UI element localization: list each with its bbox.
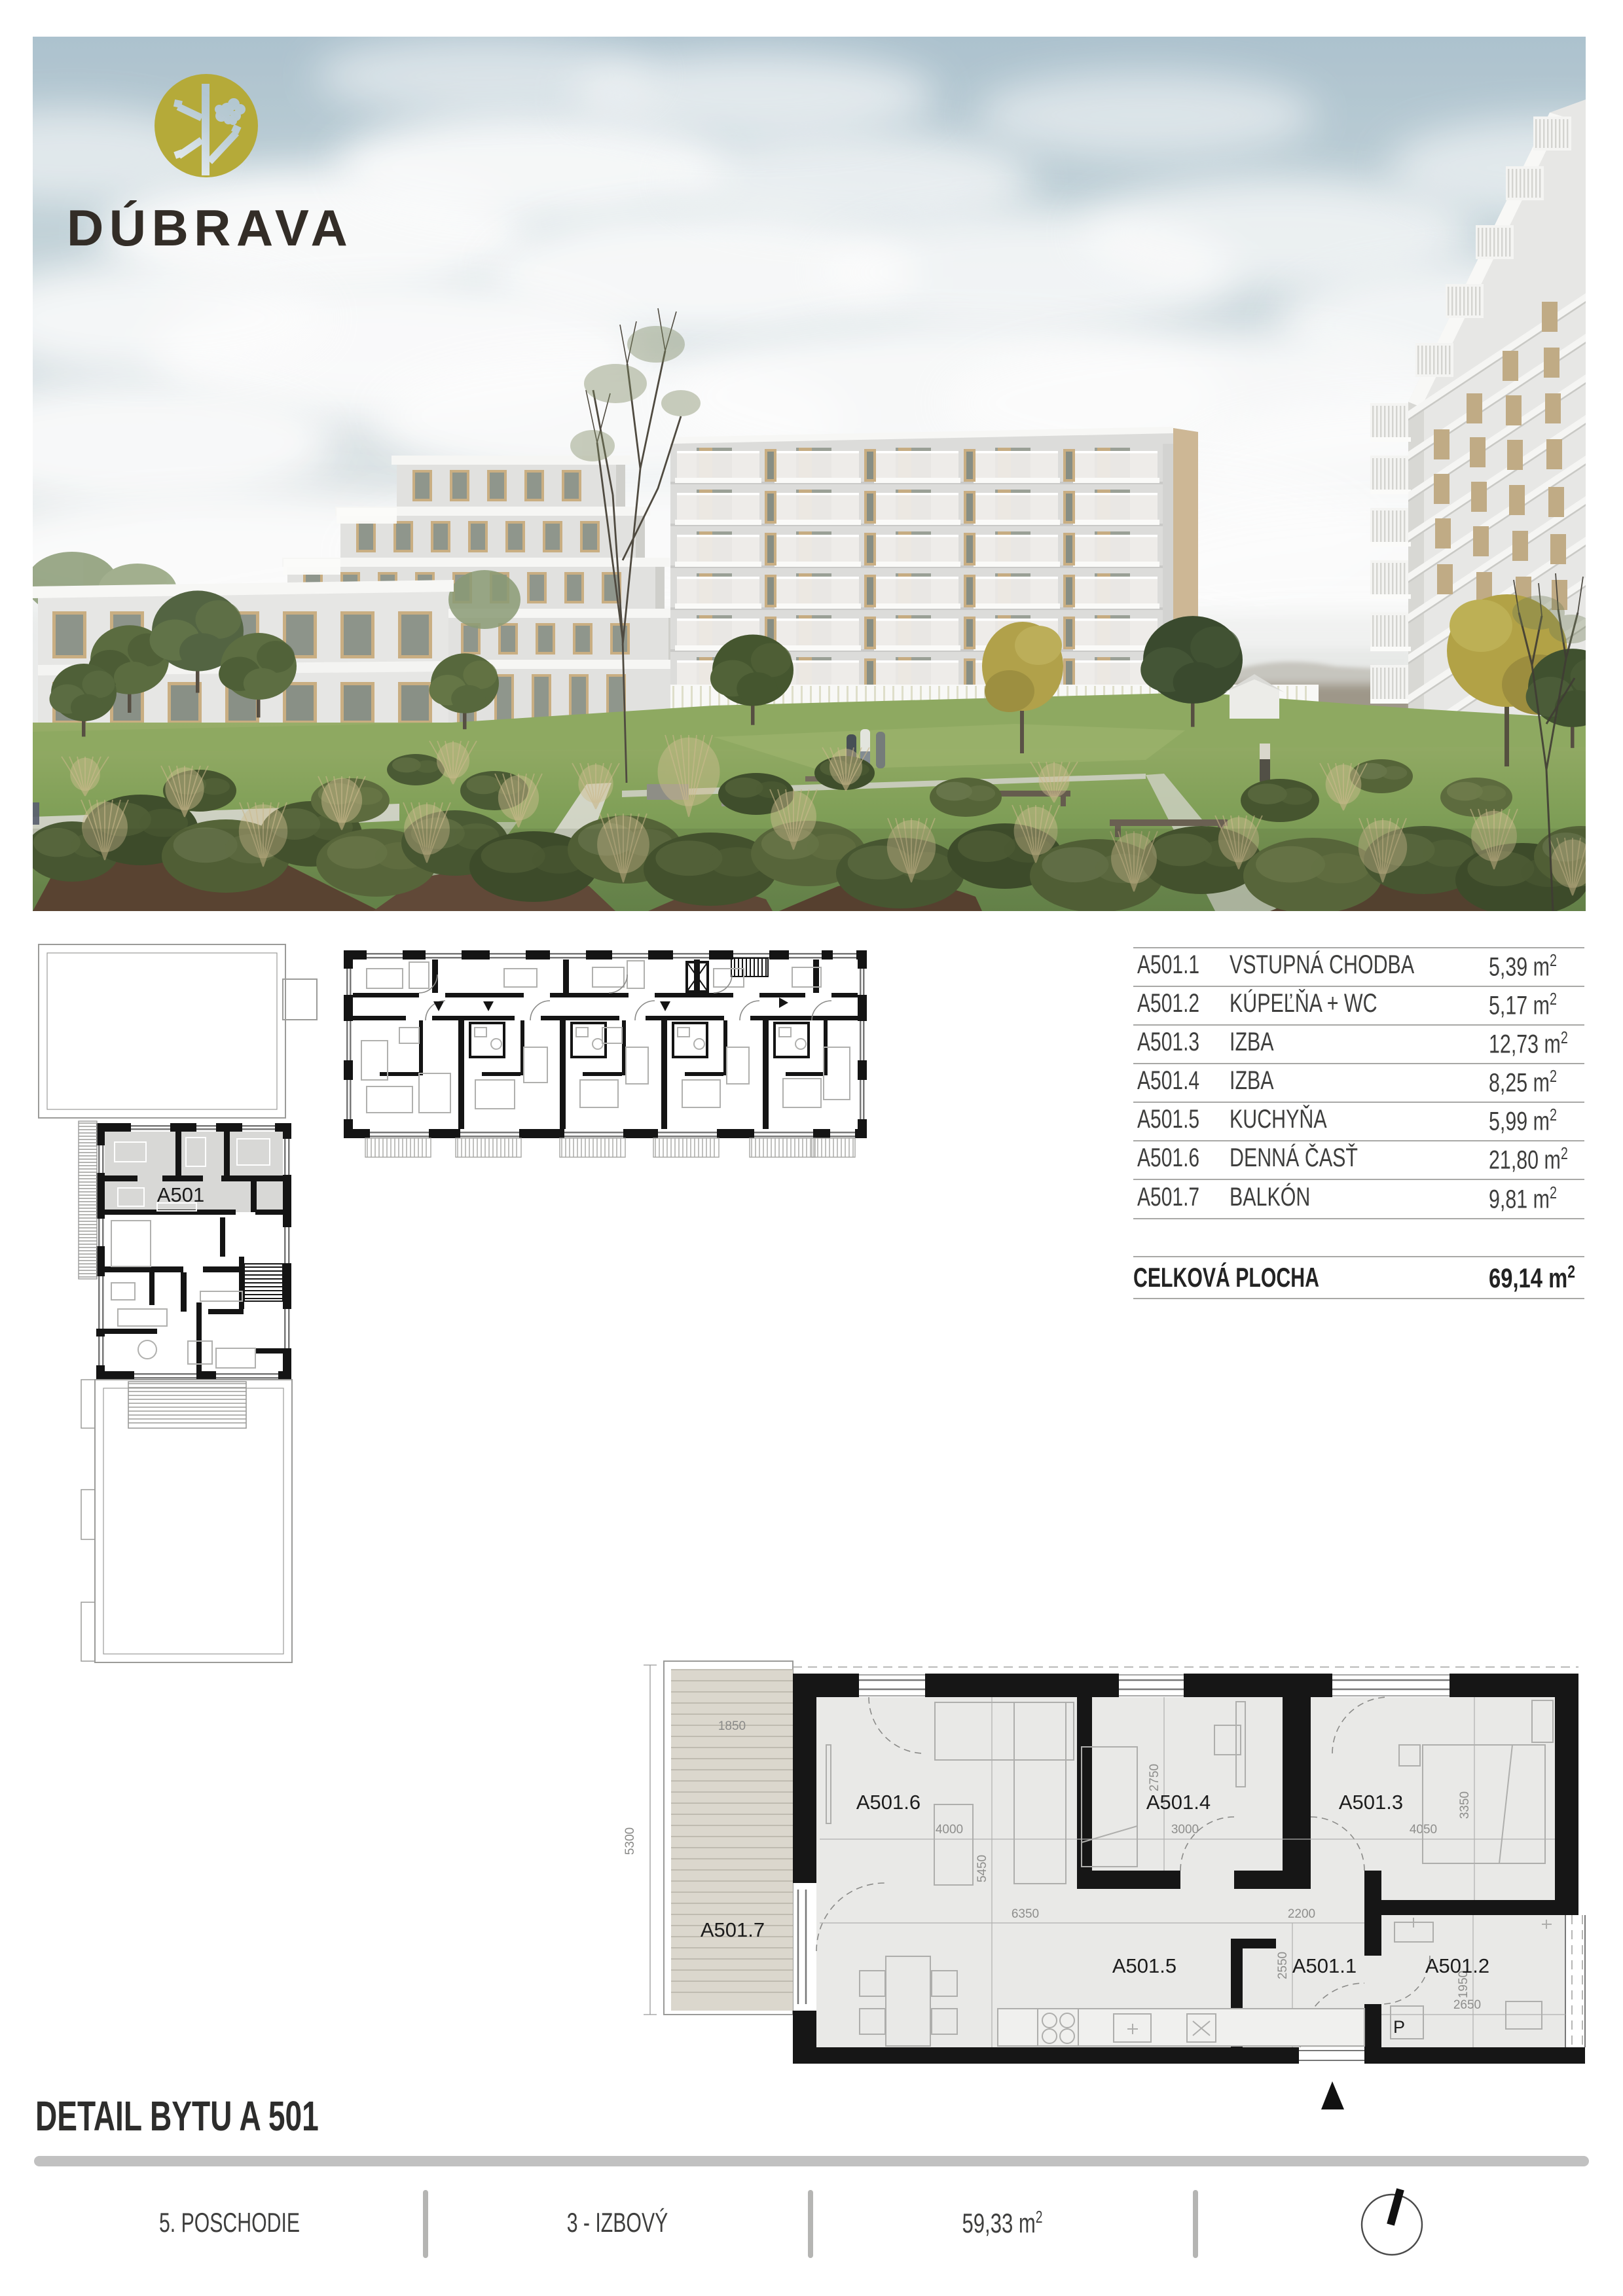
- svg-text:2200: 2200: [1288, 1907, 1315, 1921]
- svg-text:2750: 2750: [1148, 1764, 1161, 1791]
- svg-text:A501.1: A501.1: [1292, 1954, 1357, 1977]
- svg-text:4000: 4000: [936, 1823, 963, 1837]
- svg-text:P: P: [1393, 2017, 1405, 2037]
- svg-text:5450: 5450: [976, 1855, 989, 1882]
- svg-text:A501.6: A501.6: [856, 1791, 921, 1814]
- svg-text:A501.7: A501.7: [701, 1918, 765, 1941]
- svg-text:A501.5: A501.5: [1112, 1954, 1176, 1977]
- svg-text:A501.2: A501.2: [1425, 1954, 1489, 1977]
- svg-text:A501.3: A501.3: [1339, 1791, 1403, 1814]
- svg-text:3000: 3000: [1171, 1823, 1199, 1837]
- svg-text:1850: 1850: [718, 1719, 746, 1733]
- svg-text:2550: 2550: [1276, 1952, 1290, 1979]
- svg-text:2650: 2650: [1453, 1998, 1481, 2012]
- svg-text:3350: 3350: [1458, 1791, 1472, 1819]
- svg-text:6350: 6350: [1012, 1907, 1039, 1921]
- svg-text:A501.4: A501.4: [1146, 1791, 1211, 1814]
- svg-text:5300: 5300: [623, 1827, 637, 1855]
